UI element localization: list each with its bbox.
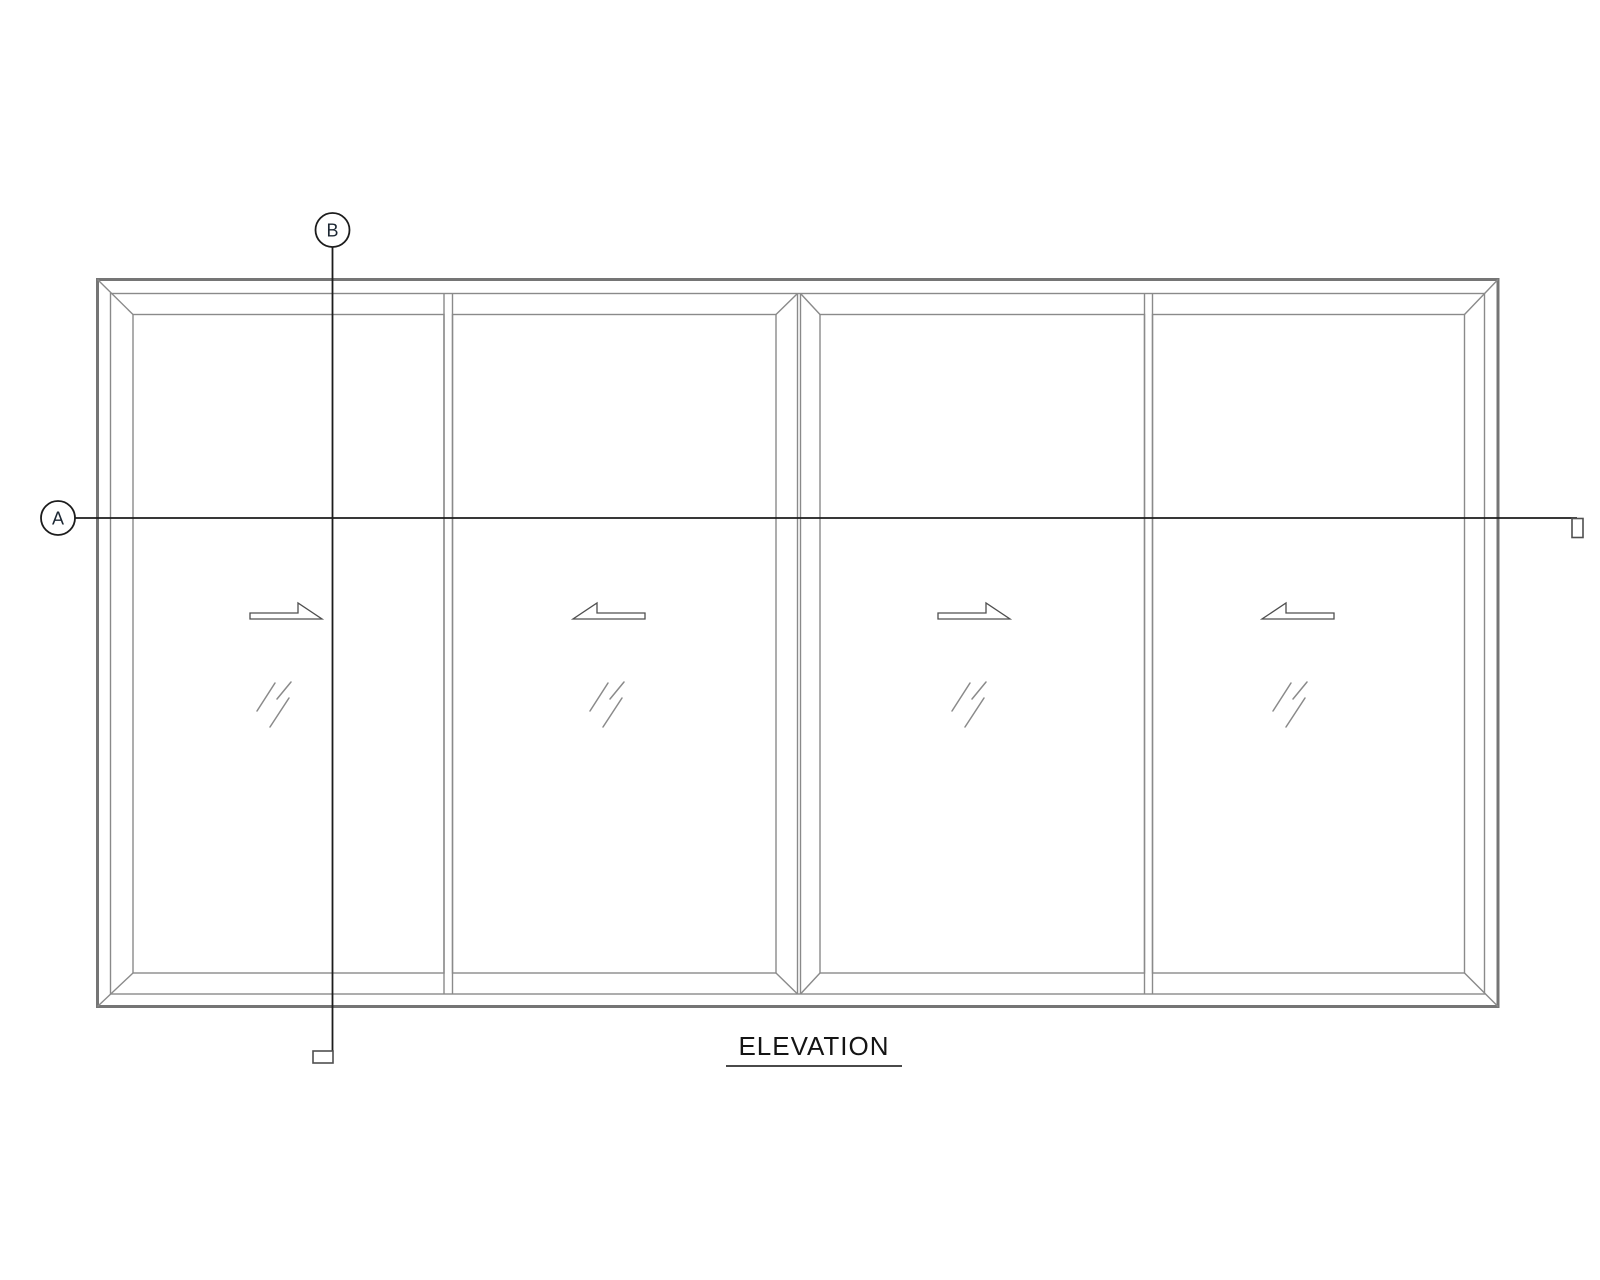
glass-hatch-icon: [1273, 682, 1307, 727]
glass-hatch-symbols: [257, 682, 1307, 727]
section-a-direction-flag: [1572, 519, 1583, 538]
meeting-stile-miter-top-right: [801, 294, 821, 315]
frame-miter-top-right: [1465, 280, 1499, 315]
section-a-marker-label: A: [52, 509, 64, 529]
frame-miter-top-left: [98, 280, 134, 315]
section-b-direction-flag: [313, 1051, 333, 1063]
sash-panel-3: [820, 315, 1145, 974]
elevation-drawing: A B: [0, 0, 1600, 1280]
frame-miter-bottom-left: [98, 973, 134, 1007]
frame-miter-bottom-right: [1465, 973, 1499, 1007]
sash-panel-2: [453, 315, 777, 974]
slide-arrow-left-icon: [1262, 603, 1334, 619]
sash-panel-4: [1153, 315, 1465, 974]
meeting-stile-miter-top-left: [776, 294, 798, 315]
glass-hatch-icon: [257, 682, 291, 727]
drawing-sheet: A B ELEVATION: [0, 0, 1600, 1280]
glass-hatch-icon: [590, 682, 624, 727]
meeting-stile-miter-bottom-right: [801, 973, 821, 994]
section-line-b: B: [313, 213, 350, 1063]
glass-hatch-icon: [952, 682, 986, 727]
sash-panel-1: [133, 315, 444, 974]
slide-direction-arrows: [250, 603, 1334, 619]
slide-arrow-right-icon: [250, 603, 322, 619]
slide-arrow-left-icon: [573, 603, 645, 619]
section-line-a: A: [41, 501, 1583, 538]
slide-arrow-right-icon: [938, 603, 1010, 619]
drawing-title: ELEVATION: [726, 1032, 902, 1067]
meeting-stile-miter-bottom-left: [776, 973, 798, 994]
section-b-marker-label: B: [326, 221, 338, 241]
